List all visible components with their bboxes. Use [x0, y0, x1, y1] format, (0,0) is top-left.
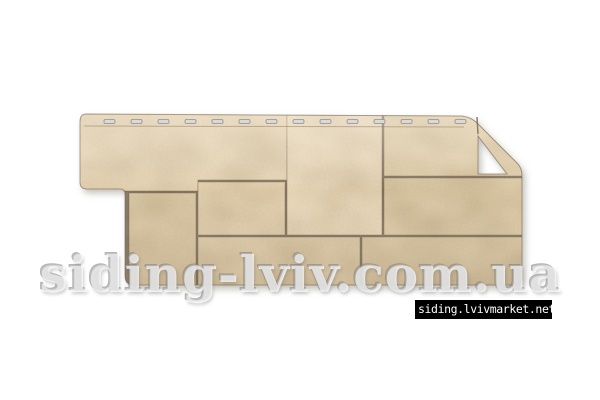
nail-slot [320, 120, 331, 124]
nail-slot [293, 120, 304, 124]
nail-slot [239, 120, 250, 124]
website-label: siding.lvivmarket.net [415, 300, 552, 319]
nail-slot [131, 120, 142, 124]
panel-shading [70, 105, 535, 295]
nail-slot [212, 120, 223, 124]
panel-drawing [70, 105, 535, 295]
page: siding-lviv.com.ua siding.lvivmarket.net [0, 0, 600, 400]
nail-slot [104, 120, 115, 124]
extra-joint-lines [477, 117, 478, 134]
nail-slot [455, 120, 466, 124]
nail-slot [374, 120, 385, 124]
nail-slot [347, 120, 358, 124]
siding-panel-image [0, 0, 600, 400]
nail-slot [158, 120, 169, 124]
nail-slot [428, 120, 439, 124]
nail-slot [266, 120, 277, 124]
nail-slot [185, 120, 196, 124]
joint-line [477, 117, 478, 134]
nail-slot [401, 120, 412, 124]
